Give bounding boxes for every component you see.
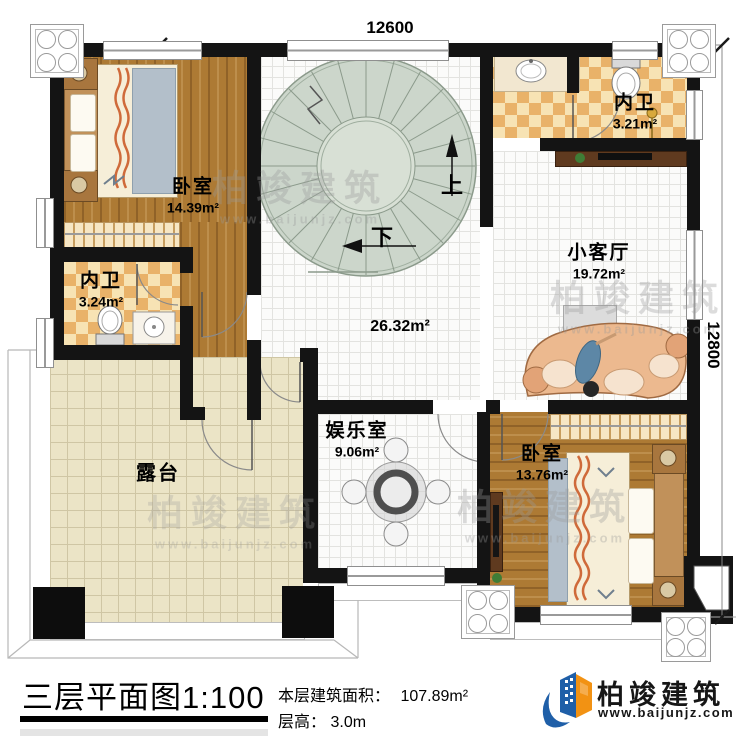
window <box>686 90 703 140</box>
room-name: 内卫 <box>613 91 657 115</box>
wall <box>303 348 318 583</box>
column-decor <box>662 24 716 78</box>
window <box>103 41 202 60</box>
window <box>287 40 449 61</box>
stair-up-label: 上 <box>441 168 463 200</box>
stair-down-label: 下 <box>371 220 393 252</box>
room-name: 卧室 <box>516 442 568 466</box>
tv-bedroom-br <box>493 505 499 557</box>
wardrobe-br <box>550 414 687 440</box>
floor-terrace <box>50 357 303 622</box>
column-black <box>282 586 334 638</box>
wall <box>247 43 261 295</box>
label-bedroom-tl: 卧室 14.39m² <box>167 175 219 216</box>
title-underline-shadow <box>20 729 268 736</box>
bed-br-post-bottom <box>652 576 686 606</box>
bed-br-mattress <box>566 452 630 606</box>
window <box>347 566 445 586</box>
wall <box>50 345 193 360</box>
column-black <box>33 587 85 639</box>
dimension-height: 12800 <box>703 321 723 368</box>
label-hall-area: 26.32m² <box>370 317 430 337</box>
wall <box>180 306 193 420</box>
wall <box>480 43 493 227</box>
label-living-room: 小客厅 19.72m² <box>567 241 630 282</box>
room-name: 露台 <box>136 462 180 487</box>
wall <box>247 340 261 420</box>
bed-tl-pillow-1 <box>70 94 96 132</box>
terrace-parapet <box>50 622 305 640</box>
wall <box>193 407 205 420</box>
room-name: 小客厅 <box>567 241 630 265</box>
building-area-value: 107.89m² <box>400 688 468 705</box>
wall <box>303 568 347 583</box>
label-recreation: 娱乐室 9.06m² <box>325 419 388 460</box>
column-decor <box>30 24 84 78</box>
wall <box>567 53 579 93</box>
wall <box>50 247 180 262</box>
room-area: 26.32m² <box>370 318 430 335</box>
bed-br-post-top <box>652 444 686 474</box>
room-name: 内卫 <box>79 269 123 293</box>
column-decor <box>461 585 515 639</box>
bed-tl-pillow-2 <box>70 134 96 172</box>
title-underline <box>20 716 268 722</box>
column-decor <box>661 612 711 662</box>
company-logo-icon <box>536 666 596 728</box>
window <box>612 41 658 60</box>
building-area-line: 本层建筑面积： 107.89m² <box>278 682 468 706</box>
wall <box>548 400 700 414</box>
floor-height-line: 层高： 3.0m <box>278 708 366 732</box>
floor-height-value: 3.0m <box>330 714 366 731</box>
building-area-label: 本层建筑面积： <box>278 688 390 705</box>
dimension-width: 12600 <box>366 18 413 38</box>
window <box>686 230 703 320</box>
label-bath-right: 内卫 3.21m² <box>613 91 657 132</box>
wall <box>200 43 288 57</box>
label-bedroom-br: 卧室 13.76m² <box>516 442 568 483</box>
room-name: 娱乐室 <box>325 419 388 443</box>
label-terrace: 露台 <box>136 462 180 487</box>
room-area: 3.24m² <box>79 293 123 311</box>
window <box>36 198 54 248</box>
bed-br-pillow-1 <box>628 488 654 534</box>
room-area: 19.72m² <box>567 265 630 283</box>
wall <box>540 138 700 151</box>
company-logo-url: www.baijunjz.com <box>598 705 734 720</box>
bed-tl-post-bottom <box>62 170 98 202</box>
window <box>36 318 54 368</box>
room-area: 14.39m² <box>167 199 219 217</box>
wall <box>687 318 700 560</box>
room-area: 3.21m² <box>613 115 657 133</box>
wardrobe-tl <box>64 222 180 248</box>
wall <box>687 138 700 230</box>
wall <box>180 247 193 273</box>
room-area: 13.76m² <box>516 466 568 484</box>
wall <box>318 400 433 414</box>
floor-height-label: 层高： <box>278 714 326 731</box>
label-bath-left: 内卫 3.24m² <box>79 269 123 310</box>
bed-br-pillow-2 <box>628 538 654 584</box>
room-name: 卧室 <box>167 175 219 199</box>
wall <box>447 43 612 57</box>
opening-living <box>480 227 493 400</box>
tv-living <box>598 153 652 160</box>
page-title: 三层平面图1:100 <box>22 672 265 717</box>
floor-plan-canvas: 卧室 14.39m² 内卫 3.24m² 内卫 3.21m² 小客厅 19.72… <box>0 0 750 738</box>
living-rug <box>563 305 617 339</box>
window <box>540 605 632 625</box>
room-area: 9.06m² <box>325 443 388 461</box>
